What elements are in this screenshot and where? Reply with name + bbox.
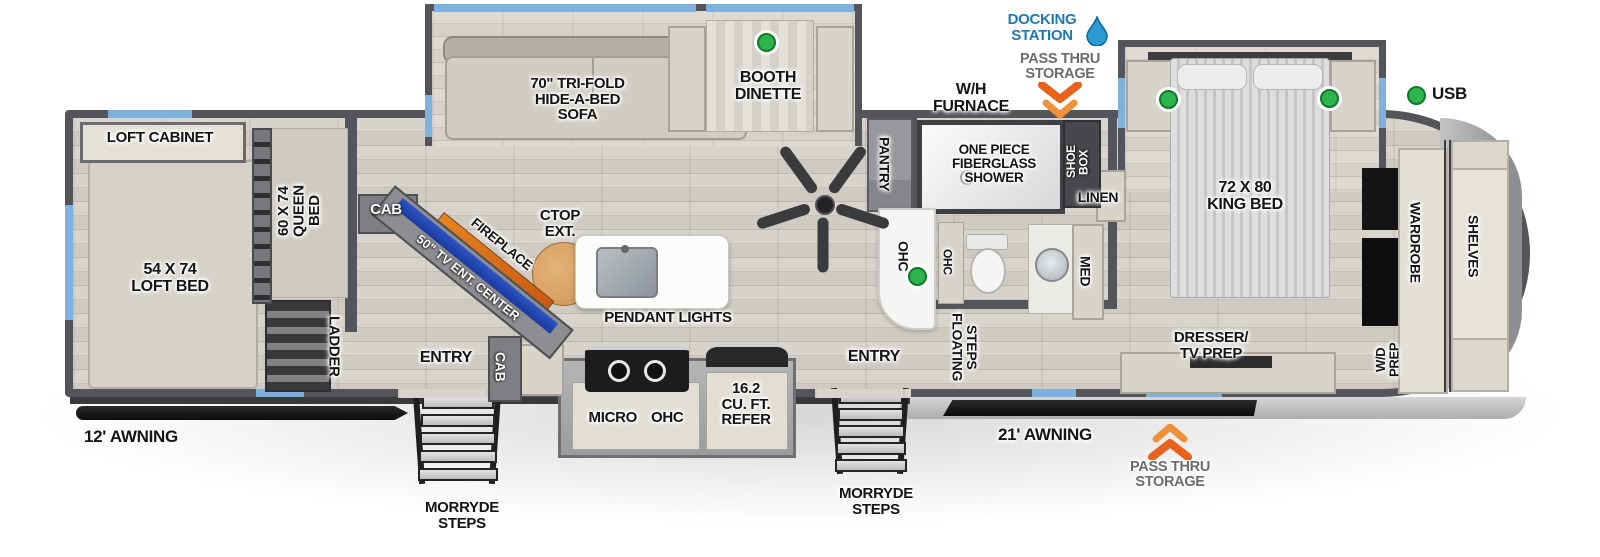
toilet	[970, 248, 1006, 294]
pass-thru-top-label: PASS THRU STORAGE	[1014, 52, 1106, 82]
island-faucet	[621, 245, 629, 253]
window-top-left	[108, 110, 192, 118]
ohc-kitchen-label: OHC	[651, 410, 683, 426]
usb-dot-dinette	[757, 33, 776, 52]
entry-left-label: ENTRY	[408, 350, 484, 367]
stove-burner-1	[608, 360, 630, 382]
stove-burner-2	[644, 360, 666, 382]
window-rear-wall	[65, 205, 73, 320]
floating-steps-label: FLOATING STEPS	[950, 303, 979, 391]
pendant-lights-label: PENDANT LIGHTS	[598, 310, 738, 326]
usb-dot-nightstand-right	[1320, 89, 1339, 108]
water-drop-icon	[1086, 16, 1108, 46]
pantry-label: PANTRY	[877, 124, 892, 204]
window-king-right	[1379, 78, 1386, 128]
shelves-label: SHELVES	[1466, 196, 1481, 296]
ladder-label: LADDER	[326, 302, 342, 390]
cab-lower-label: CAB	[493, 340, 508, 394]
king-pillow-right	[1253, 64, 1323, 90]
queen-bed-label: 60 X 74 QUEEN BED	[276, 156, 323, 266]
pass-thru-bottom-label: PASS THRU STORAGE	[1122, 460, 1218, 490]
dinette-bench-right	[816, 26, 854, 132]
loft-cabinet-label: LOFT CABINET	[84, 130, 236, 146]
refer-label: 16.2 CU. FT. REFER	[706, 381, 786, 428]
bath-ohc-label: OHC	[941, 232, 953, 292]
linen-label: LINEN	[1066, 190, 1130, 205]
window-bottom-mid	[1032, 389, 1076, 397]
entry-door-right	[815, 389, 911, 398]
bath-sink	[1035, 248, 1069, 282]
shelves-top-cab	[1451, 140, 1509, 170]
window-king-left	[1118, 78, 1125, 128]
island-sink	[596, 247, 658, 298]
wardrobe-label: WARDROBE	[1408, 186, 1423, 298]
loft-ladder-rail	[252, 128, 272, 304]
usb-dot-legend	[1407, 86, 1426, 105]
kitchen-labels-row: MICRO OHC	[576, 410, 696, 426]
window-slide-left	[425, 95, 432, 137]
cab-upper-label: CAB	[360, 202, 412, 218]
wd-prep-label: W/D PREP	[1374, 328, 1401, 392]
dresser-label: DRESSER/ TV PREP	[1156, 330, 1266, 361]
refer-top	[706, 344, 788, 367]
loft-bed-label: 54 X 74 LOFT BED	[100, 262, 240, 295]
dinette-bench-left	[668, 26, 706, 132]
wh-furnace-label: W/H FURNACE	[928, 82, 1014, 115]
morryde-left-label: MORRYDE STEPS	[412, 500, 512, 531]
stove	[585, 346, 689, 392]
window-slide-top-2	[706, 4, 854, 12]
closet-door-track	[1444, 140, 1451, 392]
entry-right-label: ENTRY	[838, 349, 910, 366]
morryde-right-label: MORRYDE STEPS	[826, 486, 926, 517]
window-slide-top-1	[434, 4, 696, 12]
usb-dot-desk	[908, 267, 927, 286]
shower-label: ONE PIECE FIBERGLASS SHOWER	[928, 143, 1060, 185]
usb-label: USB	[1432, 85, 1482, 103]
chevron-down-icon	[1038, 82, 1082, 120]
king-pillow-left	[1177, 64, 1247, 90]
usb-dot-nightstand-left	[1159, 90, 1178, 109]
garage-stairs	[265, 300, 331, 392]
med-label: MED	[1078, 246, 1093, 296]
dinette-label: BOOTH DINETTE	[718, 70, 818, 103]
king-bed-label: 72 X 80 KING BED	[1180, 180, 1310, 213]
morryde-steps-left-graphic	[408, 392, 508, 496]
sofa-label: 70" TRI-FOLD HIDE-A-BED SOFA	[505, 76, 650, 123]
shelves-bottom-cab	[1451, 338, 1509, 392]
king-mattress	[1170, 58, 1330, 298]
awning-left-label: 12' AWNING	[84, 428, 214, 446]
shoe-box-label: SHOE BOX	[1065, 126, 1090, 198]
awning-right-label: 21' AWNING	[985, 426, 1105, 444]
awning-roller-left	[76, 406, 408, 420]
docking-station-label: DOCKING STATION	[998, 12, 1086, 43]
floorplan-canvas: 70" TRI-FOLD HIDE-A-BED SOFA BOOTH DINET…	[0, 0, 1600, 557]
ctop-ext-label: CTOP EXT.	[528, 208, 592, 239]
chevron-up-icon	[1148, 424, 1192, 460]
micro-label: MICRO	[589, 410, 638, 426]
morryde-steps-right-graphic	[828, 388, 914, 484]
awning-roller-right	[943, 400, 1257, 416]
